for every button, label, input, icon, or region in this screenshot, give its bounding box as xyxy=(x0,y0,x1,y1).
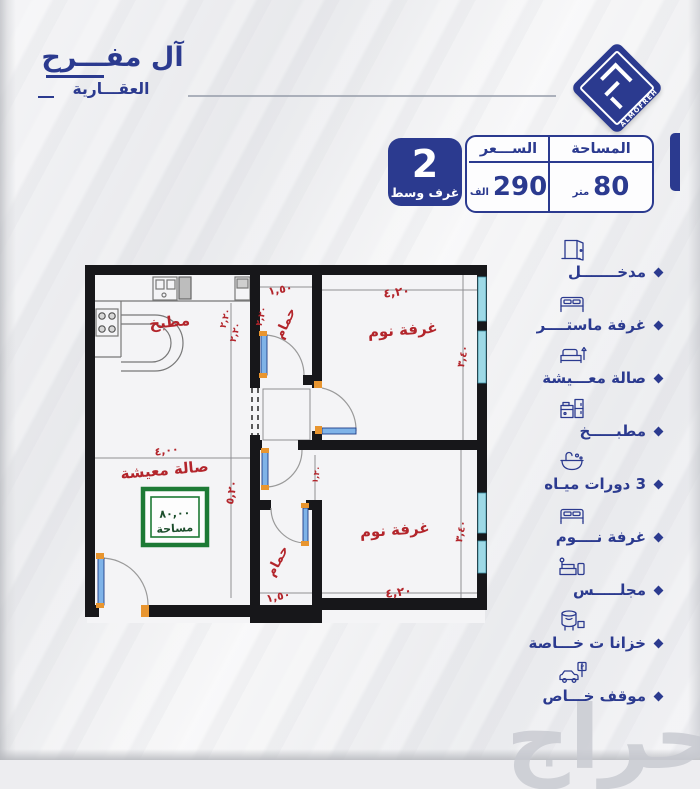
area-column: المساحة 80 متر xyxy=(550,137,652,211)
legend-label: غرفة ماستــــر xyxy=(537,316,646,334)
bathtub-icon xyxy=(557,448,587,475)
rooms-count: 2 xyxy=(412,145,438,183)
area-stamp-box: ٨٠,٠٠ مساحة xyxy=(143,489,207,545)
card-edge-left xyxy=(0,0,16,760)
kitchen-appliance xyxy=(179,277,191,299)
price-value-row: 290 الف xyxy=(470,163,547,211)
window-strip xyxy=(478,541,486,573)
price-column: الســـعر 290 الف xyxy=(469,137,548,211)
kitchen-icon xyxy=(557,395,587,422)
rooms-count-badge: 2 غرف وسط xyxy=(388,138,462,206)
legend-bullet xyxy=(654,426,664,436)
legend-bullet xyxy=(654,532,664,542)
door-icon xyxy=(557,236,587,263)
door-leaf xyxy=(261,335,267,375)
legend-item-private-parking: P موقف خـــاص xyxy=(482,660,662,705)
legend-item-private-tanks: خزانا ت خـــاصة xyxy=(482,607,662,652)
brand-name-line1: آل مفـــرح xyxy=(40,42,185,73)
window-strip xyxy=(478,493,486,533)
bed-icon xyxy=(557,289,587,316)
entrance-opening xyxy=(250,388,260,435)
legend-bullet xyxy=(654,585,664,595)
legend-label: 3 دورات ميـاه xyxy=(544,475,646,493)
door-leaf xyxy=(262,450,268,487)
legend-bullet xyxy=(654,638,664,648)
legend-bullet xyxy=(654,320,664,330)
legend-label: موقف خـــاص xyxy=(542,687,646,705)
legend-label: مجلـــــس xyxy=(573,581,646,599)
sofa-icon xyxy=(557,342,587,369)
legend-item-entrance: مدخـــــــل xyxy=(482,236,662,281)
majlis-sofa-icon xyxy=(557,554,587,581)
legend-label: مدخـــــــل xyxy=(568,263,646,281)
parking-icon: P xyxy=(557,660,587,687)
price-value: 290 xyxy=(493,172,547,202)
floor-plan: ٨٠,٠٠ مساحة مطبخ ٢,٢٠ ٢,٢٠ ١,٥٠ حمام ٢,٢… xyxy=(85,265,487,625)
area-header: المساحة xyxy=(571,137,631,161)
legend-item-bathrooms: 3 دورات ميـاه xyxy=(482,448,662,493)
legend-label: صالة معـــيشة xyxy=(542,369,646,387)
legend-bullet xyxy=(654,267,664,277)
price-unit: الف xyxy=(470,187,489,198)
legend-item-living-room: صالة معـــيشة xyxy=(482,342,662,387)
area-value-row: 80 متر xyxy=(573,163,630,211)
legend-label: مطبـــــخ xyxy=(580,422,646,440)
area-stamp-value: ٨٠,٠٠ xyxy=(159,506,191,521)
legend-label: خزانا ت خـــاصة xyxy=(529,634,646,652)
price-header: الســـعر xyxy=(480,137,537,161)
legend-item-bedroom: غرفة نــــوم xyxy=(482,501,662,546)
blue-side-tab xyxy=(670,133,680,191)
area-unit: متر xyxy=(573,187,590,198)
header-divider-line xyxy=(188,95,556,97)
legend-label: غرفة نــــوم xyxy=(556,528,646,546)
window-strip xyxy=(478,331,486,383)
window-strip xyxy=(478,277,486,321)
door-leaf xyxy=(322,428,356,434)
brand-name-line2: العقـــارية xyxy=(46,80,176,98)
spec-divider xyxy=(548,137,550,211)
legend-bullet xyxy=(654,373,664,383)
water-tank-icon xyxy=(557,607,587,634)
features-legend: مدخـــــــل غرفة ماستــــر صالة معـــيشة xyxy=(482,236,662,705)
brand-dash xyxy=(38,96,54,98)
legend-item-majlis: مجلـــــس xyxy=(482,554,662,599)
haraj-watermark: حراج xyxy=(506,694,700,782)
spec-box: المساحة 80 متر الســـعر 290 الف xyxy=(465,135,654,213)
rooms-count-label: غرف وسط xyxy=(391,185,460,200)
parking-letter: P xyxy=(580,664,584,671)
legend-bullet xyxy=(654,479,664,489)
legend-bullet xyxy=(654,691,664,701)
area-value: 80 xyxy=(593,172,629,202)
door-leaf xyxy=(98,558,104,605)
bed-icon xyxy=(557,501,587,528)
card-edge-right xyxy=(688,0,700,760)
brand-underline xyxy=(46,75,104,78)
area-stamp-label: مساحة xyxy=(156,521,193,536)
legend-item-kitchen: مطبـــــخ xyxy=(482,395,662,440)
door-leaf xyxy=(303,508,308,543)
legend-item-master-bedroom: غرفة ماستــــر xyxy=(482,289,662,334)
